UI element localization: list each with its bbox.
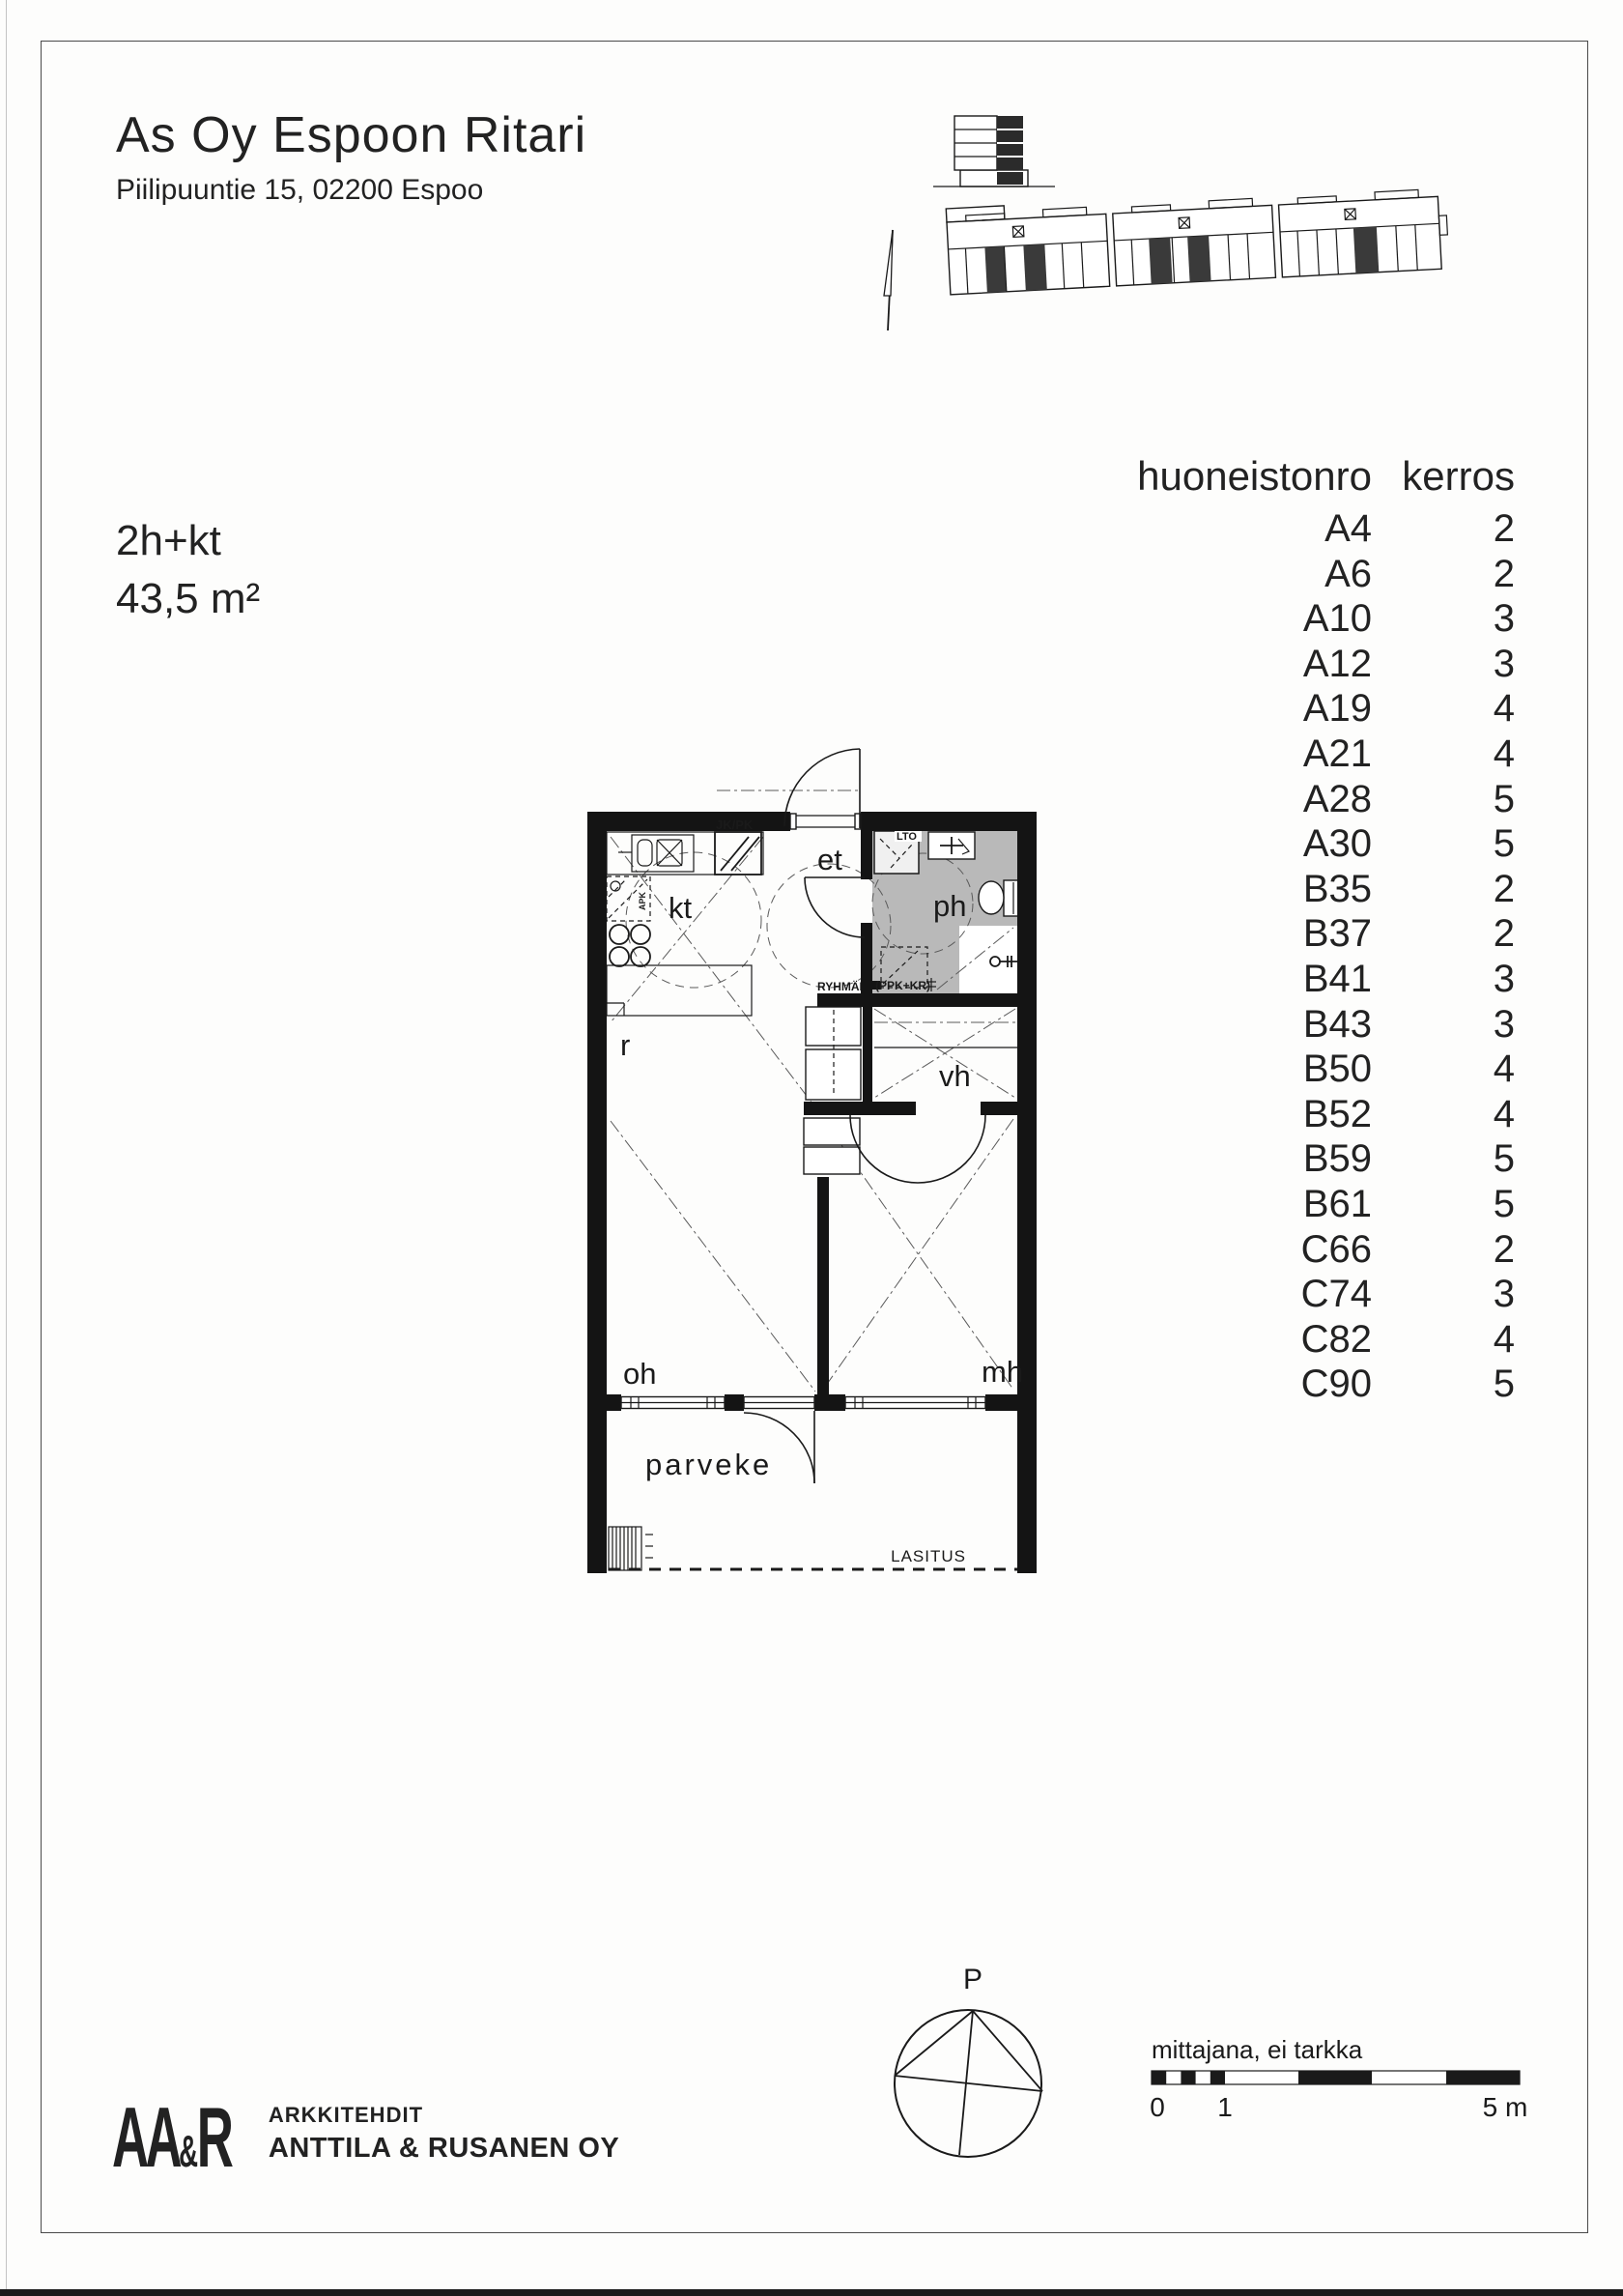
logo-text: ARKKITEHDIT ANTTILA & RUSANEN OY — [269, 2099, 619, 2165]
table-row: B413 — [1090, 957, 1523, 1002]
apartment-number: A28 — [1090, 777, 1372, 822]
table-row: A123 — [1090, 642, 1523, 687]
floor-number: 4 — [1372, 686, 1515, 732]
scale-tick-0: 0 — [1150, 2092, 1165, 2122]
floor-number: 4 — [1372, 732, 1515, 777]
table-row: A285 — [1090, 777, 1523, 822]
toilet — [979, 880, 1019, 916]
window-living-room — [621, 1397, 725, 1409]
logo-mark-aa: AA — [112, 2089, 179, 2185]
table-row: A305 — [1090, 821, 1523, 867]
apartment-number: B37 — [1090, 911, 1372, 957]
scale-bar-blocks — [1152, 2071, 1520, 2084]
apartment-type: 2h+kt — [116, 512, 260, 570]
floor-number: 5 — [1372, 821, 1515, 867]
apartment-number: B41 — [1090, 957, 1372, 1002]
site-building-b — [1112, 197, 1275, 286]
floor-number: 3 — [1372, 957, 1515, 1002]
ppk-kr-label: (PPK+KR) — [875, 979, 930, 992]
table-row: A214 — [1090, 732, 1523, 777]
compass: P — [840, 1957, 1082, 2179]
title-block: As Oy Espoon Ritari Piilipuuntie 15, 022… — [116, 106, 586, 207]
room-label-entry: et — [817, 843, 842, 876]
apartment-number: B52 — [1090, 1092, 1372, 1137]
site-north-arrow — [884, 230, 893, 330]
column-header-floor: kerros — [1372, 452, 1515, 501]
apartment-table-header: huoneistonro kerros — [1090, 452, 1523, 501]
floor-number: 3 — [1372, 1272, 1515, 1317]
stove — [610, 925, 650, 966]
north-label: P — [963, 1964, 982, 1995]
site-building-a — [946, 200, 1109, 295]
apartment-number: B61 — [1090, 1182, 1372, 1227]
table-row: C662 — [1090, 1227, 1523, 1273]
table-row: B615 — [1090, 1182, 1523, 1227]
fridge-freezer — [715, 832, 761, 875]
floor-number: 5 — [1372, 1362, 1515, 1407]
room-label-balcony: parveke — [645, 1448, 772, 1481]
heat-recovery-unit: LTO — [895, 829, 922, 843]
entry-threshold — [790, 814, 861, 829]
table-row: C824 — [1090, 1317, 1523, 1363]
room-label-bathroom: ph — [933, 889, 966, 923]
apartment-number: C66 — [1090, 1227, 1372, 1273]
apartment-number: B50 — [1090, 1047, 1372, 1092]
table-row: B352 — [1090, 867, 1523, 912]
apartment-number: A30 — [1090, 821, 1372, 867]
apartment-table: huoneistonro kerros A42 A62 A103 A123 A1… — [1090, 452, 1523, 1407]
lto-label: LTO — [897, 831, 917, 843]
room-label-bedroom: mh — [982, 1355, 1023, 1389]
page-address: Piilipuuntie 15, 02200 Espoo — [116, 174, 586, 207]
washbasin — [928, 832, 975, 859]
dishwasher-reservation: APK — [607, 876, 650, 921]
building-elevation-sketch — [933, 116, 1055, 187]
table-row: A62 — [1090, 552, 1523, 597]
apartment-number: A4 — [1090, 506, 1372, 552]
ryhmak-label: RYHMÄK — [817, 979, 868, 993]
table-row: C905 — [1090, 1362, 1523, 1407]
scale-caption: mittajana, ei tarkka — [1152, 2035, 1363, 2064]
floor-number: 5 — [1372, 1182, 1515, 1227]
plan-sheet-page: As Oy Espoon Ritari Piilipuuntie 15, 022… — [0, 0, 1623, 2296]
apartment-number: B59 — [1090, 1136, 1372, 1182]
floor-number: 5 — [1372, 777, 1515, 822]
logo-line-arkkitehdit: ARKKITEHDIT — [269, 2103, 619, 2128]
room-label-closet: vh — [939, 1059, 971, 1093]
floor-number: 2 — [1372, 552, 1515, 597]
scan-edge-bottom-bar — [0, 2289, 1623, 2296]
apartment-number: A21 — [1090, 732, 1372, 777]
floor-number: 4 — [1372, 1092, 1515, 1137]
floor-number: 3 — [1372, 642, 1515, 687]
logo-mark-r: R — [197, 2089, 231, 2185]
apartment-area: 43,5 m² — [116, 570, 260, 628]
table-row: C743 — [1090, 1272, 1523, 1317]
room-label-living-room: oh — [623, 1357, 656, 1391]
table-row: A42 — [1090, 506, 1523, 552]
site-building-c — [1278, 188, 1449, 277]
scan-edge-line — [6, 0, 7, 2296]
apartment-number: C90 — [1090, 1362, 1372, 1407]
floor-number: 2 — [1372, 911, 1515, 957]
table-row: B372 — [1090, 911, 1523, 957]
apartment-number: A19 — [1090, 686, 1372, 732]
balcony-glazing: LASITUS — [609, 1547, 1017, 1569]
logo-mark: AA&R — [112, 2099, 230, 2190]
floor-plan-drawing: APK LTO — [575, 725, 1058, 1585]
window-bedroom — [845, 1397, 985, 1409]
dishwasher-label: APK — [638, 891, 647, 910]
hall-closets — [806, 1007, 861, 1100]
floor-number: 2 — [1372, 1227, 1515, 1273]
site-plan-drawing — [850, 82, 1449, 401]
logo-mark-ampersand: & — [179, 2126, 197, 2176]
column-header-apartment: huoneistonro — [1090, 452, 1372, 501]
floor-number: 2 — [1372, 506, 1515, 552]
table-row: B504 — [1090, 1047, 1523, 1092]
balcony-grille — [609, 1527, 653, 1570]
table-row: B433 — [1090, 1002, 1523, 1048]
kitchen-worktop — [607, 965, 752, 1016]
apartment-number: B43 — [1090, 1002, 1372, 1048]
room-label-kitchen: kt — [669, 891, 693, 925]
logo-line-company: ANTTILA & RUSANEN OY — [269, 2133, 619, 2165]
floor-number: 4 — [1372, 1047, 1515, 1092]
floor-number: 4 — [1372, 1317, 1515, 1363]
apartment-number: C82 — [1090, 1317, 1372, 1363]
apartment-number: A6 — [1090, 552, 1372, 597]
scale-bar: mittajana, ei tarkka 0 1 5 m — [1140, 2024, 1546, 2131]
hall-doors — [850, 1115, 985, 1183]
table-row: A103 — [1090, 596, 1523, 642]
scale-tick-1: 1 — [1217, 2092, 1233, 2122]
floor-number: 5 — [1372, 1136, 1515, 1182]
apartment-number: B35 — [1090, 867, 1372, 912]
floor-number: 3 — [1372, 596, 1515, 642]
apartment-table-rows: A42 A62 A103 A123 A194 A214 A285 A305 B3… — [1090, 506, 1523, 1407]
floor-number: 3 — [1372, 1002, 1515, 1048]
apartment-number: C74 — [1090, 1272, 1372, 1317]
apartment-number: A12 — [1090, 642, 1372, 687]
closet-shelf-lines — [874, 1022, 1017, 1048]
bathroom-door — [805, 877, 865, 937]
table-row: B595 — [1090, 1136, 1523, 1182]
floor-number: 2 — [1372, 867, 1515, 912]
fridge-label: JK/PK — [716, 818, 754, 832]
site-buildings — [946, 183, 1449, 295]
architect-logo: AA&R ARKKITEHDIT ANTTILA & RUSANEN OY — [112, 2099, 619, 2190]
apartment-number: A10 — [1090, 596, 1372, 642]
scale-tick-5: 5 m — [1483, 2092, 1528, 2122]
lasitus-label: LASITUS — [891, 1547, 966, 1565]
apartment-info: 2h+kt 43,5 m² — [116, 512, 260, 628]
table-row: B524 — [1090, 1092, 1523, 1137]
room-label-r: r — [620, 1028, 630, 1062]
page-title: As Oy Espoon Ritari — [116, 106, 586, 164]
table-row: A194 — [1090, 686, 1523, 732]
